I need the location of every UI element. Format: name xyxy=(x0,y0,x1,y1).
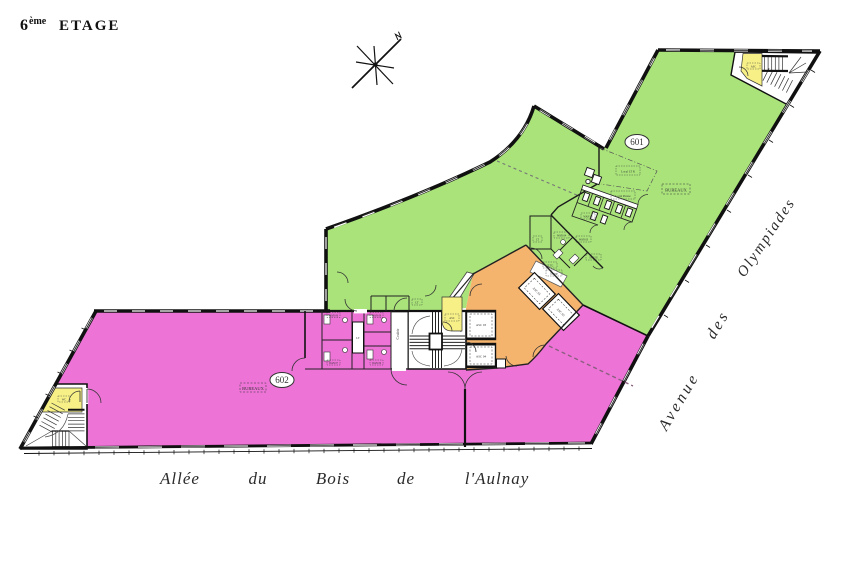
svg-text:l'Aulnay: l'Aulnay xyxy=(465,469,530,488)
svg-text:602: 602 xyxy=(275,375,289,385)
svg-text:WAN 04: WAN 04 xyxy=(557,235,567,238)
svg-text:ASC 04: ASC 04 xyxy=(476,355,487,359)
svg-text:ASC: ASC xyxy=(751,66,757,69)
svg-text:Dégagt: Dégagt xyxy=(550,273,558,276)
svg-text:BUREAUX: BUREAUX xyxy=(242,386,265,391)
svg-text:LT: LT xyxy=(536,239,539,242)
svg-text:ASC 03: ASC 03 xyxy=(476,323,487,327)
svg-text:WAN 08: WAN 08 xyxy=(372,315,382,318)
svg-text:LT: LT xyxy=(356,336,360,340)
svg-text:LT: LT xyxy=(415,302,418,305)
svg-text:LT.TG: LT.TG xyxy=(547,265,554,268)
svg-text:SAN 05: SAN 05 xyxy=(589,257,598,260)
svg-text:WC: WC xyxy=(62,399,67,402)
svg-text:WAN 07: WAN 07 xyxy=(329,362,339,365)
svg-text:Couloir: Couloir xyxy=(396,328,400,340)
svg-text:WAN 06: WAN 06 xyxy=(329,315,339,318)
svg-text:ETAGE: ETAGE xyxy=(59,18,120,34)
svg-text:Local LT R: Local LT R xyxy=(621,170,635,174)
svg-text:de: de xyxy=(397,469,415,488)
svg-text:du: du xyxy=(249,469,268,488)
svg-text:Local Presse: Local Presse xyxy=(615,194,631,198)
svg-text:WAN 02: WAN 02 xyxy=(583,216,593,219)
svg-text:6: 6 xyxy=(20,17,28,34)
svg-text:BUREAUX: BUREAUX xyxy=(665,188,688,193)
svg-text:WAN 03: WAN 03 xyxy=(579,239,589,242)
svg-text:ème: ème xyxy=(29,16,47,27)
svg-text:WAN 09: WAN 09 xyxy=(372,362,382,365)
svg-text:601: 601 xyxy=(630,137,644,147)
svg-text:Allée: Allée xyxy=(159,469,200,488)
svg-text:ASC: ASC xyxy=(449,317,455,320)
svg-text:Bois: Bois xyxy=(316,469,350,488)
